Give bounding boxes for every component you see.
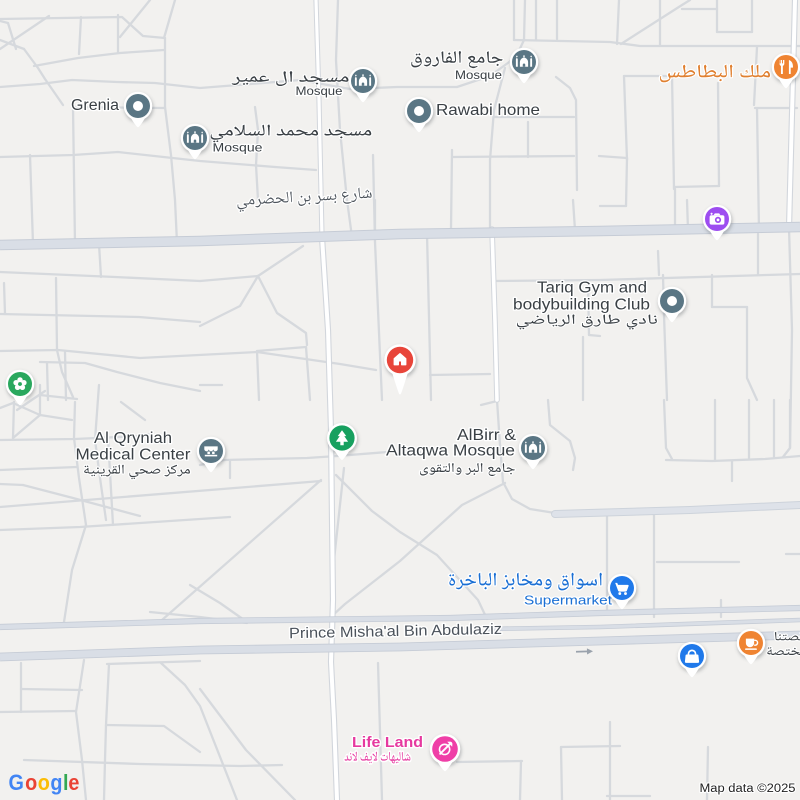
svg-text:e: e bbox=[68, 771, 79, 795]
svg-text:Mosque: Mosque bbox=[296, 86, 343, 98]
svg-text:bodybuilding Club: bodybuilding Club bbox=[513, 296, 650, 313]
svg-text:Map data ©2025: Map data ©2025 bbox=[700, 783, 796, 795]
svg-text:Mosque: Mosque bbox=[213, 143, 263, 155]
svg-text:Supermarket: Supermarket bbox=[524, 593, 612, 608]
svg-text:Al Qryniah: Al Qryniah bbox=[94, 430, 172, 447]
svg-text:Medical Center: Medical Center bbox=[76, 447, 191, 464]
svg-text:G: G bbox=[9, 771, 24, 795]
svg-text:Grenia: Grenia bbox=[71, 97, 119, 114]
svg-text:Rawabi home: Rawabi home bbox=[436, 102, 540, 119]
svg-text:g: g bbox=[50, 771, 62, 795]
svg-text:Tariq Gym and: Tariq Gym and bbox=[537, 280, 647, 297]
svg-text:Mosque: Mosque bbox=[455, 70, 502, 82]
svg-text:Altaqwa Mosque: Altaqwa Mosque bbox=[386, 443, 515, 460]
svg-text:o: o bbox=[38, 771, 50, 795]
svg-text:AlBirr &: AlBirr & bbox=[457, 427, 517, 444]
svg-text:Life Land: Life Land bbox=[352, 734, 423, 751]
svg-text:o: o bbox=[25, 771, 37, 795]
